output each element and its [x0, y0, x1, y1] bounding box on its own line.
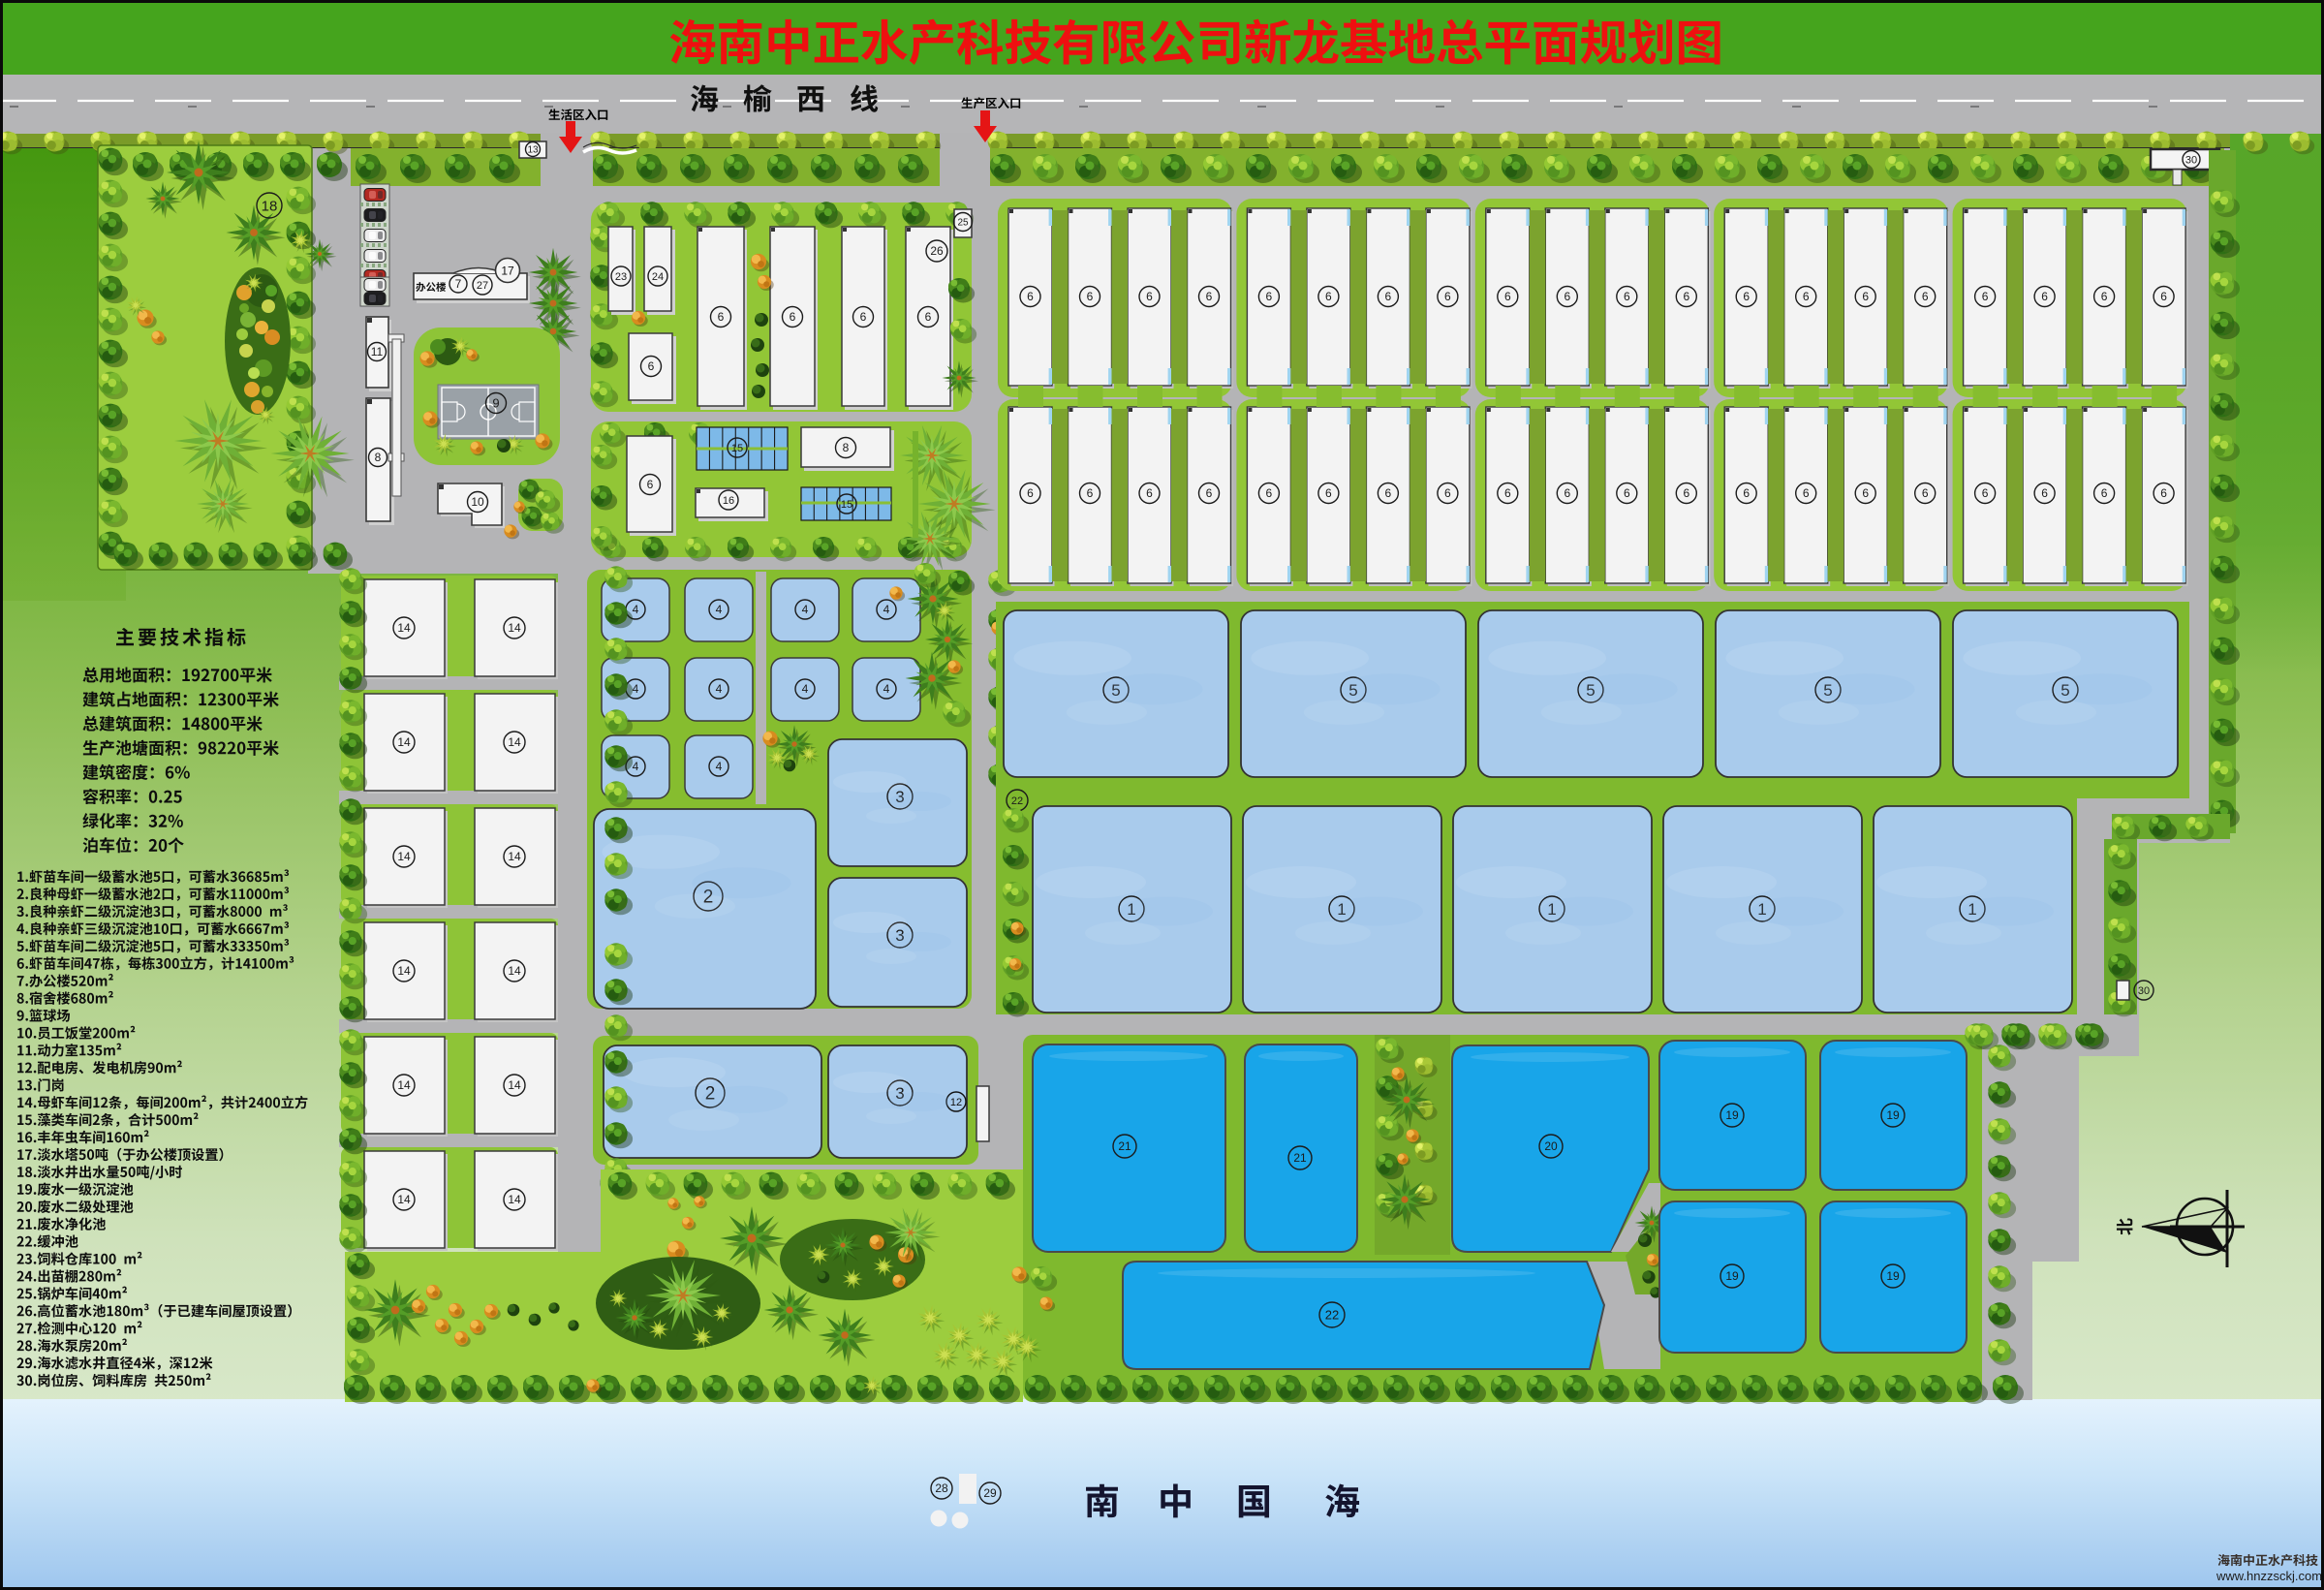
- svg-text:6: 6: [1982, 290, 1989, 303]
- svg-text:14: 14: [508, 964, 521, 978]
- svg-text:6: 6: [2160, 290, 2167, 303]
- svg-text:4: 4: [716, 760, 723, 773]
- svg-text:14: 14: [508, 735, 521, 749]
- svg-text:6: 6: [1385, 290, 1392, 303]
- svg-text:4: 4: [716, 682, 723, 696]
- svg-text:19: 19: [1886, 1108, 1900, 1122]
- svg-text:6: 6: [1266, 486, 1273, 500]
- svg-text:6: 6: [718, 310, 725, 324]
- svg-text:6: 6: [1444, 486, 1451, 500]
- svg-text:21: 21: [1293, 1151, 1307, 1165]
- svg-text:19: 19: [1886, 1269, 1900, 1283]
- svg-text:4: 4: [802, 603, 809, 616]
- svg-text:6: 6: [1803, 486, 1810, 500]
- svg-text:4: 4: [633, 603, 639, 616]
- svg-text:6: 6: [1922, 486, 1929, 500]
- svg-text:6: 6: [1325, 290, 1332, 303]
- svg-text:6: 6: [1385, 486, 1392, 500]
- svg-text:14: 14: [397, 964, 411, 978]
- svg-text:4: 4: [802, 682, 809, 696]
- svg-text:6: 6: [2041, 290, 2048, 303]
- svg-text:6: 6: [1146, 290, 1153, 303]
- svg-text:8: 8: [843, 441, 850, 454]
- svg-text:6: 6: [1444, 290, 1451, 303]
- svg-text:6: 6: [648, 359, 655, 373]
- svg-text:6: 6: [1862, 290, 1869, 303]
- svg-text:14: 14: [508, 1078, 521, 1092]
- svg-text:6: 6: [1206, 486, 1213, 500]
- svg-text:16: 16: [723, 495, 734, 507]
- svg-text:4: 4: [716, 603, 723, 616]
- svg-text:7: 7: [455, 277, 462, 291]
- svg-text:6: 6: [1683, 486, 1689, 500]
- svg-text:6: 6: [860, 310, 867, 324]
- svg-text:6: 6: [1564, 486, 1570, 500]
- svg-text:14: 14: [397, 621, 411, 635]
- svg-text:4: 4: [883, 682, 890, 696]
- svg-text:6: 6: [2101, 290, 2108, 303]
- svg-text:6: 6: [1803, 290, 1810, 303]
- svg-text:8: 8: [375, 451, 382, 464]
- svg-text:10: 10: [471, 495, 484, 509]
- svg-text:19: 19: [1725, 1108, 1739, 1122]
- svg-text:12: 12: [950, 1097, 962, 1108]
- svg-text:6: 6: [1027, 290, 1034, 303]
- svg-text:6: 6: [1325, 486, 1332, 500]
- svg-text:9: 9: [492, 396, 499, 411]
- svg-text:6: 6: [1624, 290, 1630, 303]
- svg-text:18: 18: [262, 198, 278, 214]
- svg-text:6: 6: [1564, 290, 1570, 303]
- svg-text:17: 17: [501, 265, 514, 278]
- svg-text:6: 6: [790, 310, 796, 324]
- svg-text:24: 24: [652, 271, 664, 283]
- svg-text:11: 11: [371, 345, 384, 359]
- svg-text:6: 6: [1982, 486, 1989, 500]
- svg-text:14: 14: [508, 621, 521, 635]
- svg-text:25: 25: [957, 218, 969, 229]
- svg-text:22: 22: [1011, 795, 1023, 807]
- svg-text:13: 13: [527, 145, 539, 156]
- svg-text:6: 6: [1504, 290, 1511, 303]
- svg-text:30: 30: [2185, 154, 2197, 166]
- svg-text:14: 14: [397, 1078, 411, 1092]
- svg-text:14: 14: [508, 850, 521, 863]
- svg-text:26: 26: [930, 244, 944, 258]
- svg-text:6: 6: [1862, 486, 1869, 500]
- svg-text:6: 6: [1683, 290, 1689, 303]
- svg-text:27: 27: [477, 280, 488, 292]
- svg-text:21: 21: [1118, 1139, 1131, 1153]
- svg-text:6: 6: [2041, 486, 2048, 500]
- svg-text:23: 23: [615, 271, 627, 283]
- svg-text:14: 14: [397, 1193, 411, 1206]
- svg-text:6: 6: [1743, 290, 1750, 303]
- svg-text:28: 28: [935, 1481, 948, 1495]
- svg-text:15: 15: [841, 499, 852, 511]
- svg-text:6: 6: [647, 478, 654, 491]
- svg-text:4: 4: [633, 760, 639, 773]
- svg-text:20: 20: [1544, 1139, 1558, 1153]
- svg-text:6: 6: [1206, 290, 1213, 303]
- svg-text:www.hnzzsckj.com: www.hnzzsckj.com: [2216, 1569, 2322, 1583]
- svg-text:19: 19: [1725, 1269, 1739, 1283]
- svg-text:14: 14: [508, 1193, 521, 1206]
- svg-text:6: 6: [925, 310, 932, 324]
- svg-text:6: 6: [1504, 486, 1511, 500]
- svg-text:6: 6: [1087, 290, 1094, 303]
- svg-text:14: 14: [397, 735, 411, 749]
- svg-text:30: 30: [2138, 985, 2150, 997]
- svg-text:6: 6: [1922, 290, 1929, 303]
- svg-text:15: 15: [731, 443, 743, 454]
- svg-text:22: 22: [1325, 1308, 1339, 1323]
- svg-text:6: 6: [1266, 290, 1273, 303]
- svg-text:6: 6: [1087, 486, 1094, 500]
- svg-text:6: 6: [1624, 486, 1630, 500]
- svg-text:4: 4: [633, 682, 639, 696]
- svg-text:29: 29: [983, 1486, 997, 1500]
- svg-text:14: 14: [397, 850, 411, 863]
- svg-text:6: 6: [1146, 486, 1153, 500]
- svg-text:6: 6: [2101, 486, 2108, 500]
- svg-text:6: 6: [1027, 486, 1034, 500]
- svg-text:4: 4: [883, 603, 890, 616]
- svg-text:6: 6: [1743, 486, 1750, 500]
- svg-text:6: 6: [2160, 486, 2167, 500]
